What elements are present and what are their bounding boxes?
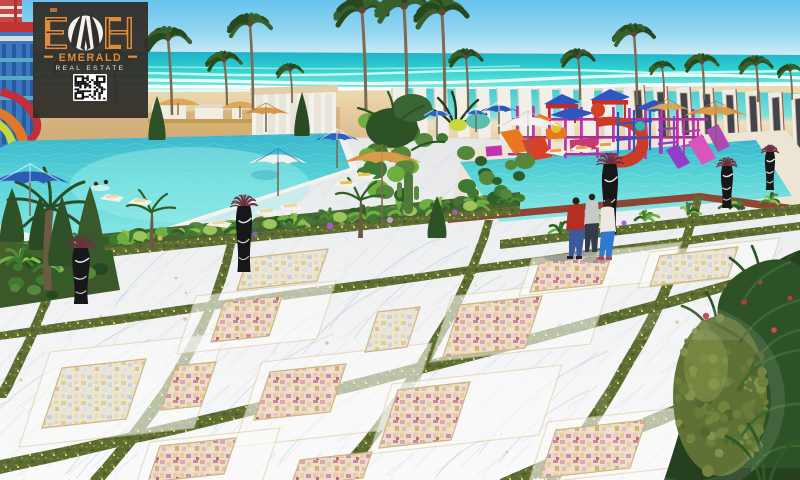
svg-text:REAL ESTATE: REAL ESTATE — [56, 65, 126, 72]
svg-text:EMERALD: EMERALD — [59, 52, 123, 64]
